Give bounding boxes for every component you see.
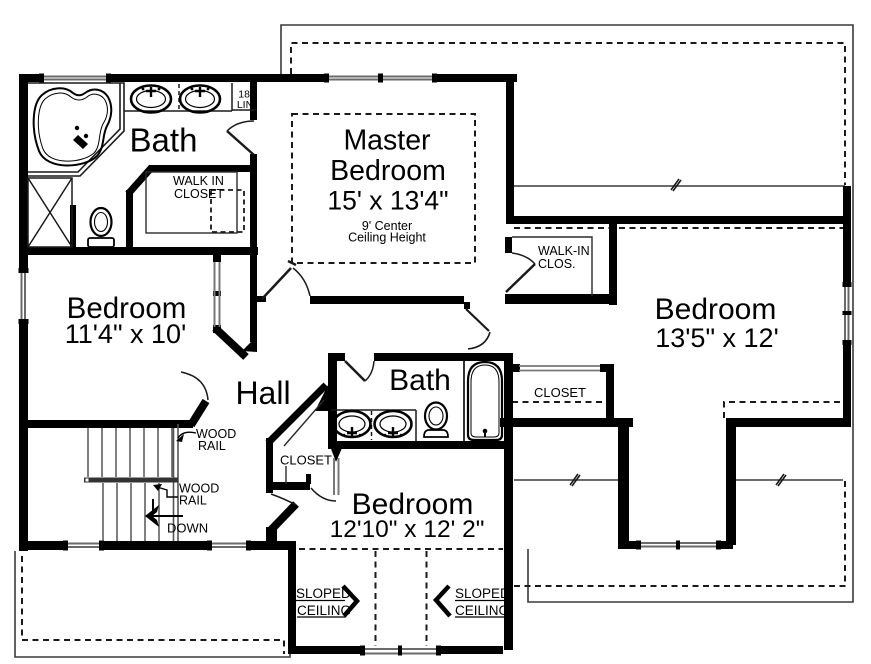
svg-text:Bath: Bath: [389, 364, 451, 397]
svg-text:RAIL: RAIL: [198, 439, 226, 453]
svg-text:15' x 13'4": 15' x 13'4": [327, 186, 448, 216]
svg-text:CLOS.: CLOS.: [538, 257, 576, 271]
svg-text:CEILING: CEILING: [455, 603, 509, 618]
svg-text:SLOPED: SLOPED: [455, 586, 510, 601]
svg-text:11'4" x 10': 11'4" x 10': [65, 319, 186, 349]
svg-text:Bedroom: Bedroom: [655, 293, 777, 326]
svg-text:LIN: LIN: [237, 99, 253, 111]
svg-text:WALK IN: WALK IN: [173, 174, 224, 188]
svg-text:Bath: Bath: [130, 122, 198, 159]
svg-text:Bedroom: Bedroom: [330, 155, 446, 187]
svg-text:12'10" x 12' 2": 12'10" x 12' 2": [330, 516, 485, 543]
svg-text:Ceiling Height: Ceiling Height: [348, 231, 426, 245]
svg-text:RAIL: RAIL: [179, 494, 207, 508]
svg-text:WALK-IN: WALK-IN: [538, 244, 590, 258]
svg-text:CEILING: CEILING: [297, 603, 351, 618]
svg-text:DOWN: DOWN: [167, 521, 208, 536]
svg-text:CLOSET: CLOSET: [280, 453, 332, 468]
svg-text:Hall: Hall: [235, 375, 290, 411]
svg-text:CLOSET: CLOSET: [174, 187, 224, 201]
svg-text:CLOSET: CLOSET: [534, 385, 586, 400]
svg-text:13'5" x 12': 13'5" x 12': [655, 323, 778, 353]
svg-text:Master: Master: [343, 125, 431, 157]
